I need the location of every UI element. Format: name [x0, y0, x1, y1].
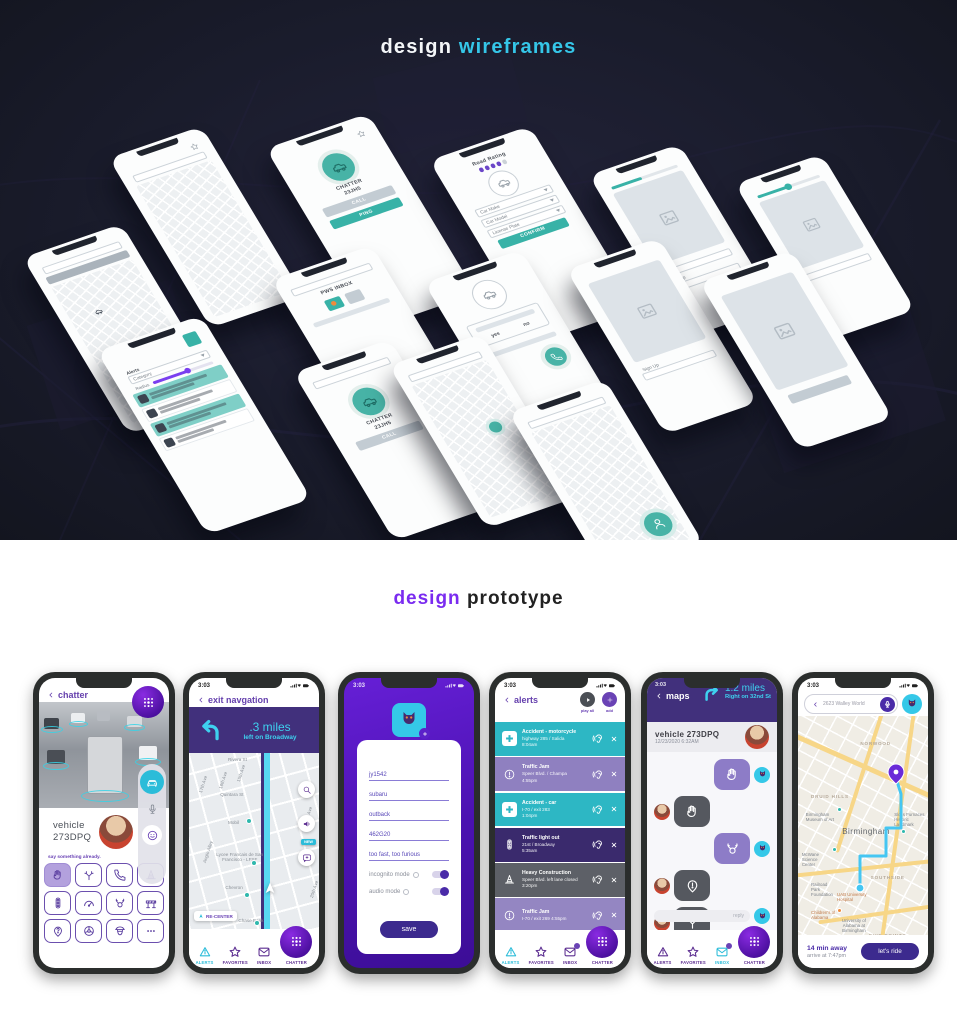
destination-text: 2623 Walley World [823, 701, 876, 707]
message-bubble[interactable] [674, 796, 710, 827]
listen-icon[interactable] [592, 873, 605, 886]
back-icon[interactable] [655, 692, 663, 700]
traffic-jam-icon [502, 767, 517, 782]
alert-list: Accident - motorcyclehighway 285 / Salid… [495, 722, 625, 932]
hand-icon [724, 766, 741, 783]
prototype-title: design prototype [0, 588, 957, 610]
vehicle-label: vehicle [53, 820, 91, 832]
dismiss-icon[interactable] [610, 805, 618, 813]
gesture-question[interactable] [44, 919, 71, 943]
page-title: maps [666, 691, 690, 701]
image-icon [768, 318, 801, 344]
dots-grid-icon [746, 933, 763, 950]
new-badge: NEW [301, 839, 316, 845]
listen-icon[interactable] [592, 768, 605, 781]
tab-favorites[interactable]: FAVORITES [681, 945, 706, 966]
tab-favorites[interactable]: FAVORITES [529, 945, 554, 966]
dismiss-icon[interactable] [610, 911, 618, 919]
route-line-alt [261, 753, 264, 929]
gesture-barrier[interactable] [137, 891, 164, 915]
caret-icon [555, 208, 560, 212]
driver-avatar [745, 725, 769, 749]
save-button[interactable]: save [380, 921, 438, 938]
detection-ring [43, 762, 69, 770]
reply-row: reply [654, 908, 770, 924]
car-marker-icon [92, 306, 105, 317]
conversation-header: vehicle 273DPQ 12/23/2020 6:32AM [647, 722, 777, 752]
location-pin [487, 419, 505, 433]
wf-yes-label: yes [490, 331, 501, 339]
message-bubble[interactable] [714, 759, 750, 790]
status-time: 3:03 [807, 683, 819, 689]
car-make-field[interactable]: subaru [369, 790, 449, 801]
page-title: exit navgation [208, 695, 269, 705]
cat-icon [397, 708, 421, 732]
plus-icon [422, 731, 428, 737]
tab-alerts[interactable]: ALERTS [196, 945, 214, 966]
car-logo-outline [484, 168, 523, 199]
tab-chatter[interactable]: CHATTER [738, 926, 770, 966]
dots-grid-icon [288, 933, 305, 950]
image-icon [798, 214, 825, 235]
more-dots-icon [144, 924, 158, 938]
accident-icon [502, 731, 517, 746]
conversation-vehicle: vehicle 273DPQ [655, 730, 739, 739]
antlers-icon [82, 868, 96, 882]
street-label: Rivera St [228, 757, 247, 762]
star-icon [228, 945, 242, 959]
pet-avatar[interactable] [392, 703, 426, 737]
info-icon [413, 872, 419, 878]
dismiss-icon[interactable] [610, 841, 618, 849]
person-icon [647, 515, 669, 533]
chatter-bubble [586, 926, 618, 958]
listen-icon[interactable] [592, 803, 605, 816]
alert-row[interactable]: Accident - motorcyclehighway 285 / Salid… [495, 722, 625, 756]
alert-type-icon [163, 437, 176, 448]
map-pin [254, 920, 260, 926]
map-pin [251, 860, 257, 866]
chatter-bubble [738, 926, 770, 958]
driver-avatar-circle [639, 508, 678, 539]
listen-icon[interactable] [592, 909, 605, 922]
car-logo-outline [467, 277, 511, 313]
recenter-button[interactable]: RE-CENTER [194, 911, 237, 921]
alert-type-icon [154, 423, 167, 434]
search-row: 2623 Walley World [798, 691, 928, 716]
search-icon [302, 785, 312, 795]
street-label: 15th Ave [236, 764, 246, 782]
audio-label: audio mode [369, 889, 400, 895]
plus-icon [606, 696, 614, 704]
star-icon [355, 128, 368, 139]
envelope-icon [257, 945, 271, 959]
dots-grid-icon [140, 694, 157, 711]
alert-triangle-icon [656, 945, 670, 959]
phone-profile: 3:03 jy1542 subaru outback 462G20 too fa… [338, 672, 480, 974]
alert-row[interactable]: Traffic light out21st / Broadway5:35am [495, 828, 625, 862]
hand-icon [684, 803, 701, 820]
gesture-police[interactable] [106, 919, 133, 943]
phone-navigation: 3:03 exit navgation .3 miles left on Bro… [183, 672, 325, 974]
instruction-text: left on Broadway [229, 734, 311, 741]
status-icons [899, 682, 919, 689]
speaker-icon [302, 819, 312, 829]
route-overlay [798, 716, 928, 968]
phone-icon [548, 350, 564, 363]
add-alert-button[interactable]: add [602, 692, 617, 713]
chat-plus-icon [302, 853, 312, 863]
incognito-row: incognito mode [369, 871, 449, 878]
cat-icon [905, 697, 919, 711]
tab-inbox[interactable]: INBOX [257, 945, 271, 966]
alert-triangle-icon [198, 945, 212, 959]
back-icon[interactable] [812, 701, 819, 708]
truck-shape [87, 736, 123, 794]
wireframes-hero: design wireframes CHATTER 23JH5 CALL PIN… [0, 0, 957, 540]
map-chat-button[interactable] [298, 849, 315, 866]
cat-avatar [754, 908, 770, 924]
alert-type-icon [137, 393, 150, 404]
driver-avatar [99, 815, 133, 849]
recenter-icon [198, 913, 204, 919]
status-icons [290, 682, 310, 689]
cat-icon [757, 769, 768, 780]
status-icons [445, 682, 465, 689]
gesture-call[interactable] [106, 863, 133, 887]
gauge-icon [82, 896, 96, 910]
vehicle-target-button[interactable] [140, 770, 164, 794]
distance-text: .3 miles [229, 720, 311, 734]
reply-input[interactable]: reply [654, 910, 750, 922]
bottom-nav: ALERTS FAVORITES INBOX CHATTER [189, 930, 319, 968]
steering-wheel-icon [82, 924, 96, 938]
van-icon [356, 391, 381, 411]
chat-thread: reply [647, 752, 777, 930]
page-title: chatter [58, 690, 88, 700]
status-time: 3:03 [504, 683, 516, 689]
traffic-light-icon [502, 837, 517, 852]
phone-notch [381, 678, 437, 688]
phone-call-fab [541, 345, 571, 369]
info-icon [403, 889, 409, 895]
tab-inbox[interactable]: INBOX [715, 945, 729, 966]
vehicle-plate: 273DPQ [53, 832, 91, 844]
tab-chatter[interactable]: CHATTER [586, 926, 618, 966]
dismiss-icon[interactable] [610, 770, 618, 778]
emoji-button[interactable] [142, 825, 162, 845]
tab-chatter[interactable]: CHATTER [280, 926, 312, 966]
turn-left-icon [197, 717, 223, 743]
license-plate-field[interactable]: 462G20 [369, 830, 449, 841]
van-icon [326, 157, 351, 177]
listen-icon[interactable] [592, 838, 605, 851]
status-time: 3:03 [353, 683, 365, 689]
poi-label: Mobil [228, 820, 239, 825]
turn-banner: .3 miles left on Broadway [189, 707, 319, 753]
nav-header: exit navgation [189, 691, 319, 707]
van-icon [492, 174, 514, 192]
lets-ride-button[interactable]: let's ride [861, 943, 919, 960]
caret-icon [200, 354, 205, 358]
deer-icon [113, 896, 127, 910]
message-received [654, 870, 770, 901]
dismiss-icon[interactable] [610, 876, 618, 884]
chatter-bubble [280, 926, 312, 958]
street-label: 16th Ave [218, 771, 228, 789]
tab-inbox[interactable]: INBOX [563, 945, 577, 966]
icon-tile [343, 289, 365, 305]
question-pin-icon [51, 924, 65, 938]
detection-ring [81, 790, 129, 802]
car-icon [145, 775, 159, 789]
gesture-more[interactable] [137, 919, 164, 943]
phone-notch [684, 678, 740, 688]
tab-alerts[interactable]: ALERTS [502, 945, 520, 966]
map-search-button[interactable] [298, 781, 315, 798]
trip-summary: 14 min away arrive at 7:47pm let's ride [798, 935, 928, 968]
alert-triangle-icon [504, 945, 518, 959]
phone-alerts: 3:03 alerts play all add Accident - moto… [489, 672, 631, 974]
message-sent [654, 833, 770, 864]
motto-field[interactable]: too fast, too furious [369, 850, 449, 861]
cat-icon [757, 911, 768, 922]
bottom-nav: ALERTS FAVORITES INBOX CHATTER [495, 930, 625, 968]
star-icon [188, 141, 201, 152]
street-label: 17th Ave [198, 775, 208, 793]
detection-ring [41, 726, 63, 733]
message-bubble[interactable] [674, 870, 710, 901]
inbox-badge [726, 943, 732, 949]
cat-icon [757, 843, 768, 854]
image-icon [632, 299, 662, 323]
voice-search-button[interactable] [880, 697, 895, 712]
inbox-badge [574, 943, 580, 949]
tab-alerts[interactable]: ALERTS [654, 945, 672, 966]
phone-icon [113, 868, 127, 882]
cat-avatar[interactable] [902, 694, 922, 714]
eta-secondary: arrive at 7:47pm [807, 953, 847, 959]
construction-icon [502, 872, 517, 887]
alert-row[interactable]: Heavy ConstructionSpeer Blvd. left lane … [495, 863, 625, 897]
tab-favorites[interactable]: FAVORITES [223, 945, 248, 966]
image-icon [654, 206, 684, 230]
record-dot [330, 301, 337, 307]
phone-notch [226, 678, 282, 688]
instruction-text: Right on 32nd St [725, 694, 771, 700]
username-field[interactable]: jy1542 [369, 770, 449, 781]
poi-label: Lycee Francais de San Francisco - LFSF [212, 852, 267, 862]
cat-avatar [754, 767, 770, 783]
status-time: 3:03 [198, 683, 210, 689]
detection-ring [69, 721, 88, 727]
driver-avatar [654, 804, 670, 820]
phone-inbox-chat: 3:03 maps 1.2 miles Right on 32nd St veh… [641, 672, 783, 974]
star-icon [686, 945, 700, 959]
profile-card: jy1542 subaru outback 462G20 too fast, t… [357, 740, 461, 954]
incognito-label: incognito mode [369, 872, 410, 878]
mic-icon [883, 700, 892, 709]
map-pin [244, 892, 250, 898]
police-icon [113, 924, 127, 938]
bottom-nav: ALERTS FAVORITES INBOX CHATTER [647, 930, 777, 968]
message-received [654, 796, 770, 827]
page: design wireframes CHATTER 23JH5 CALL PIN… [0, 0, 957, 1023]
quick-actions-panel [138, 764, 166, 884]
message-sent [654, 759, 770, 790]
destination-search[interactable]: 2623 Walley World [804, 694, 898, 714]
navigation-map[interactable]: Rivera St Quintara St 17th Ave 16th Ave … [189, 753, 319, 929]
alerts-actions: play all add [580, 692, 617, 713]
hand-icon [51, 868, 65, 882]
exclamation-pin-icon [684, 877, 701, 894]
gesture-hand[interactable] [44, 863, 71, 887]
poi-label: Chevron [225, 885, 242, 890]
phone-chatter: chatter [33, 672, 175, 974]
back-icon[interactable] [47, 691, 55, 699]
prototype-title-design: design [393, 588, 460, 609]
voice-tile [323, 296, 345, 312]
street-label: Quintara St [220, 792, 243, 797]
message-bubble[interactable] [714, 833, 750, 864]
alert-type-icon [145, 408, 158, 419]
phone-notch [532, 678, 588, 688]
wireframes-title-design: design [380, 36, 452, 58]
prototype-title-word: prototype [467, 588, 564, 609]
gesture-antlers[interactable] [75, 863, 102, 887]
smiley-icon [146, 829, 159, 842]
gesture-traffic-light[interactable] [44, 891, 71, 915]
audio-toggle[interactable] [432, 888, 449, 895]
eta-primary: 14 min away [807, 945, 847, 952]
listen-icon[interactable] [592, 732, 605, 745]
route-line [264, 753, 270, 929]
vehicle-shape [97, 711, 110, 721]
phone-notch [835, 678, 891, 688]
gesture-wheel[interactable] [75, 919, 102, 943]
add-avatar-button[interactable] [419, 728, 430, 739]
van-icon [478, 285, 502, 304]
city-map[interactable]: NORWOOD DRUID HILLS Birmingham SOUTHSIDE… [798, 716, 928, 968]
driver-avatar [654, 878, 670, 894]
map-pin [246, 818, 252, 824]
cat-avatar [754, 841, 770, 857]
alert-row[interactable]: Traffic JamSpeer Blvd. / Champa4:55pm [495, 757, 625, 791]
back-icon[interactable] [197, 696, 205, 704]
conversation-timestamp: 12/23/2020 6:32AM [655, 739, 739, 745]
play-all-button[interactable]: play all [580, 692, 595, 713]
audio-row: audio mode [369, 888, 449, 895]
gesture-deer[interactable] [106, 891, 133, 915]
wf-no-label: no [522, 321, 531, 328]
barrier-icon [144, 896, 158, 910]
accident-icon [502, 802, 517, 817]
phone-notch [76, 678, 132, 688]
map-audio-button[interactable] [298, 815, 315, 832]
wireframes-title: design wireframes [0, 36, 957, 59]
detection-ring [124, 724, 145, 731]
incognito-toggle[interactable] [432, 871, 449, 878]
dots-grid-icon [594, 933, 611, 950]
caret-icon [549, 198, 554, 202]
traffic-light-icon [51, 896, 65, 910]
page-title: alerts [514, 695, 538, 705]
gesture-speed[interactable] [75, 891, 102, 915]
status-icons [596, 682, 616, 689]
dismiss-icon[interactable] [610, 735, 618, 743]
chatter-logo[interactable] [132, 686, 164, 718]
play-icon [584, 696, 592, 704]
back-icon[interactable] [503, 696, 511, 704]
alert-row[interactable]: Accident - carI-70 / exit 2831:04pm [495, 793, 625, 827]
current-position-arrow [257, 880, 283, 896]
caret-icon [543, 188, 548, 192]
phone-map-route: 3:03 2623 Walley World NORWOOD DRUID HIL… [792, 672, 934, 974]
street-label: 20th Ave [309, 880, 319, 898]
wireframes-title-word: wireframes [459, 36, 577, 58]
deer-icon [724, 840, 741, 857]
star-icon [534, 945, 548, 959]
traffic-jam-icon [502, 908, 517, 923]
car-model-field[interactable]: outback [369, 810, 449, 821]
mic-icon[interactable] [146, 803, 159, 816]
